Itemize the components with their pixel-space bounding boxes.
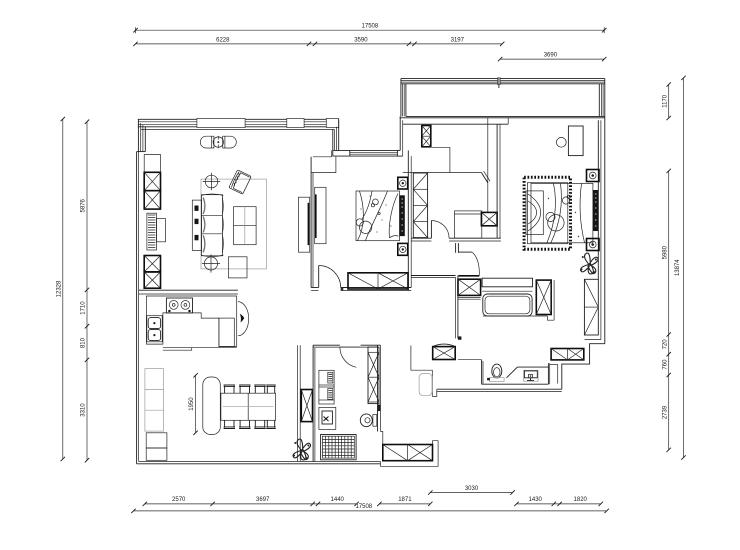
svg-text:3030: 3030 (465, 486, 479, 492)
svg-text:17508: 17508 (355, 504, 372, 510)
svg-text:3310: 3310 (81, 403, 87, 417)
svg-text:760: 760 (662, 359, 668, 370)
svg-text:1950: 1950 (189, 397, 195, 411)
svg-text:1710: 1710 (81, 301, 87, 315)
svg-text:1440: 1440 (331, 497, 345, 503)
svg-text:5980: 5980 (662, 245, 668, 259)
svg-text:17508: 17508 (362, 24, 379, 30)
svg-text:3590: 3590 (354, 37, 368, 43)
svg-text:6228: 6228 (216, 37, 230, 43)
svg-text:2739: 2739 (662, 405, 668, 419)
svg-text:2570: 2570 (172, 497, 186, 503)
svg-text:5876: 5876 (81, 198, 87, 212)
svg-text:810: 810 (81, 337, 87, 348)
svg-text:1820: 1820 (574, 497, 588, 503)
svg-text:3197: 3197 (451, 37, 465, 43)
svg-text:3697: 3697 (256, 497, 270, 503)
svg-text:1871: 1871 (398, 497, 412, 503)
svg-text:1170: 1170 (662, 94, 668, 108)
svg-text:12328: 12328 (57, 280, 63, 297)
svg-text:13874: 13874 (675, 259, 681, 276)
svg-text:1430: 1430 (529, 497, 543, 503)
svg-text:3690: 3690 (544, 52, 558, 58)
svg-text:720: 720 (662, 339, 668, 350)
